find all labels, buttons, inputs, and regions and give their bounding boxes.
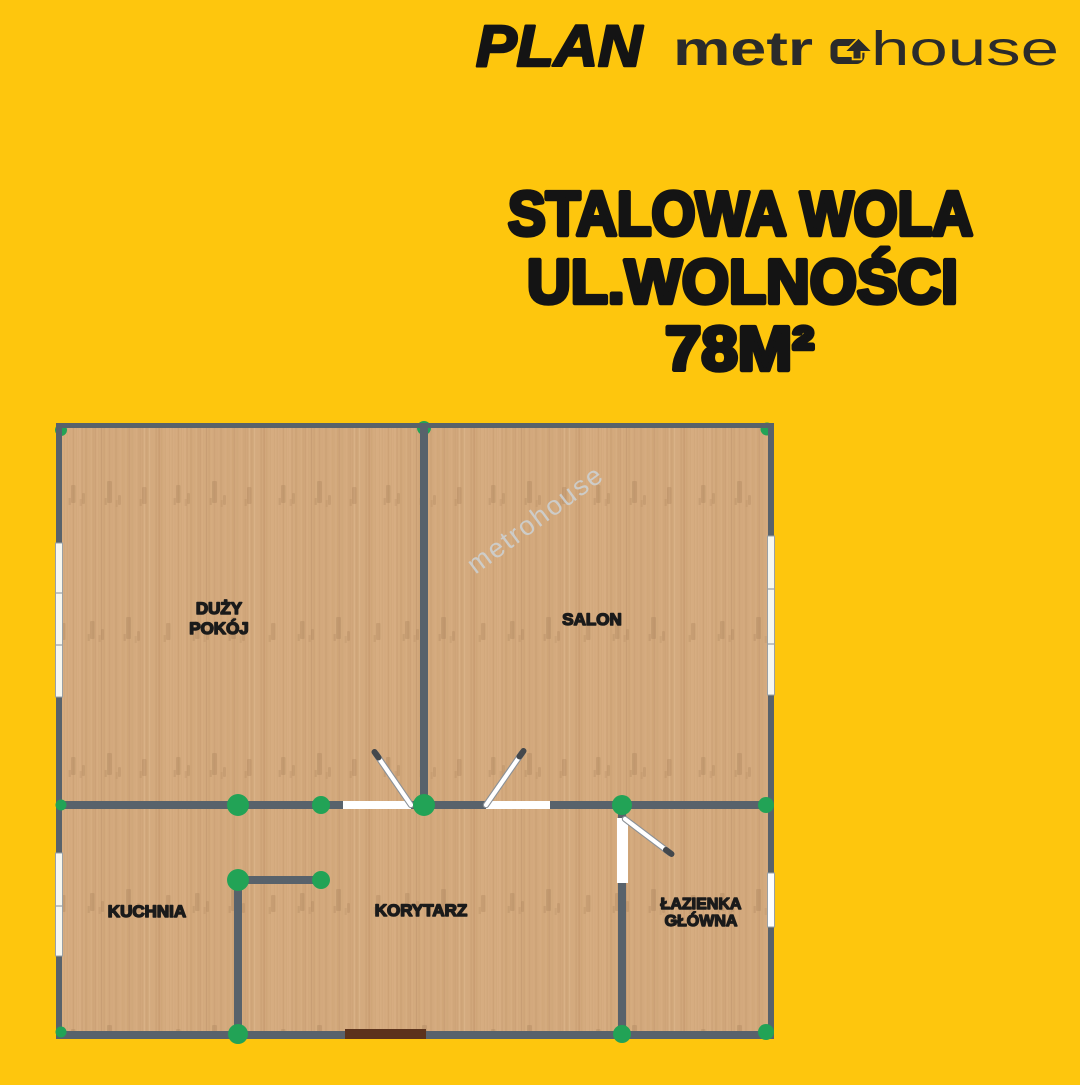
svg-text:ŁAZIENKA: ŁAZIENKA xyxy=(661,896,742,913)
svg-text:metr: metr xyxy=(673,23,813,76)
svg-text:PLAN: PLAN xyxy=(476,14,643,79)
svg-text:STALOWA WOLA: STALOWA WOLA xyxy=(508,180,973,249)
svg-text:KORYTARZ: KORYTARZ xyxy=(375,901,468,920)
svg-text:78M²: 78M² xyxy=(665,315,814,384)
svg-text:DUŻY: DUŻY xyxy=(196,599,243,618)
svg-text:UL.WOLNOŚCI: UL.WOLNOŚCI xyxy=(527,248,958,317)
svg-text:GŁÓWNA: GŁÓWNA xyxy=(665,911,738,930)
svg-text:POKÓJ: POKÓJ xyxy=(189,619,249,638)
svg-text:house: house xyxy=(871,23,1059,76)
svg-text:KUCHNIA: KUCHNIA xyxy=(108,902,186,921)
svg-text:SALON: SALON xyxy=(562,610,622,629)
